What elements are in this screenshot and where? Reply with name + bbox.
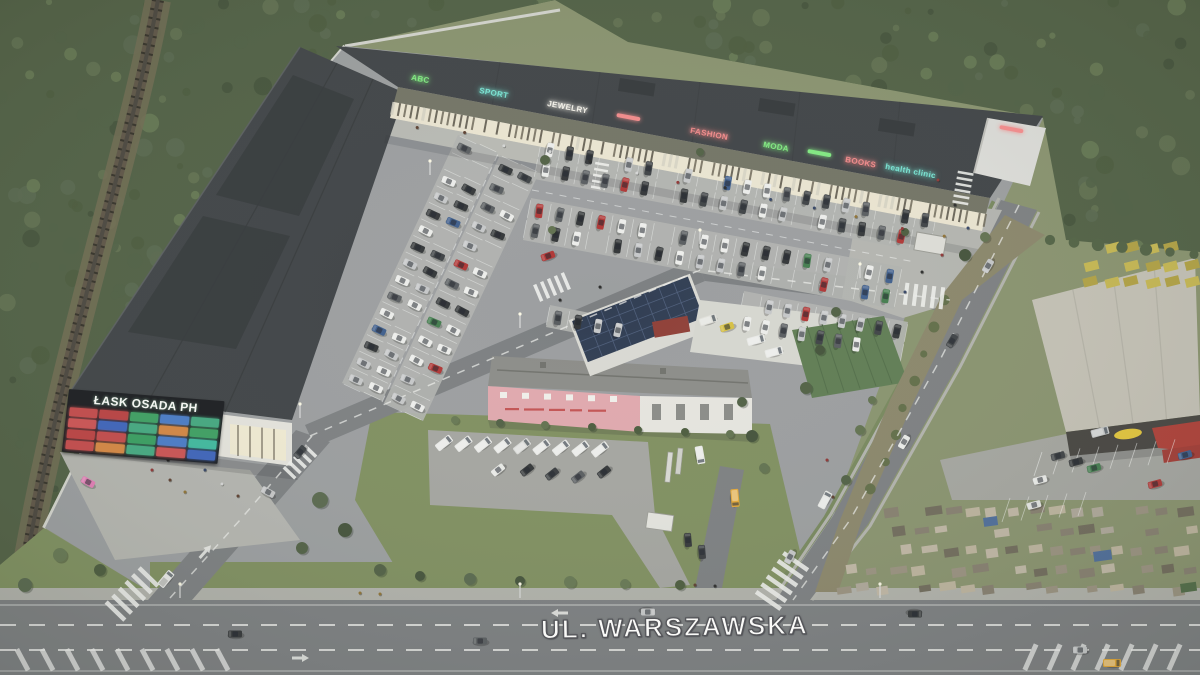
aerial-scene — [0, 0, 1200, 675]
atmosphere — [0, 0, 1200, 675]
aerial-visualization-stage: ŁASK OSADA PH ABCSPORTJEWELRYFASHIONMODA… — [0, 0, 1200, 675]
